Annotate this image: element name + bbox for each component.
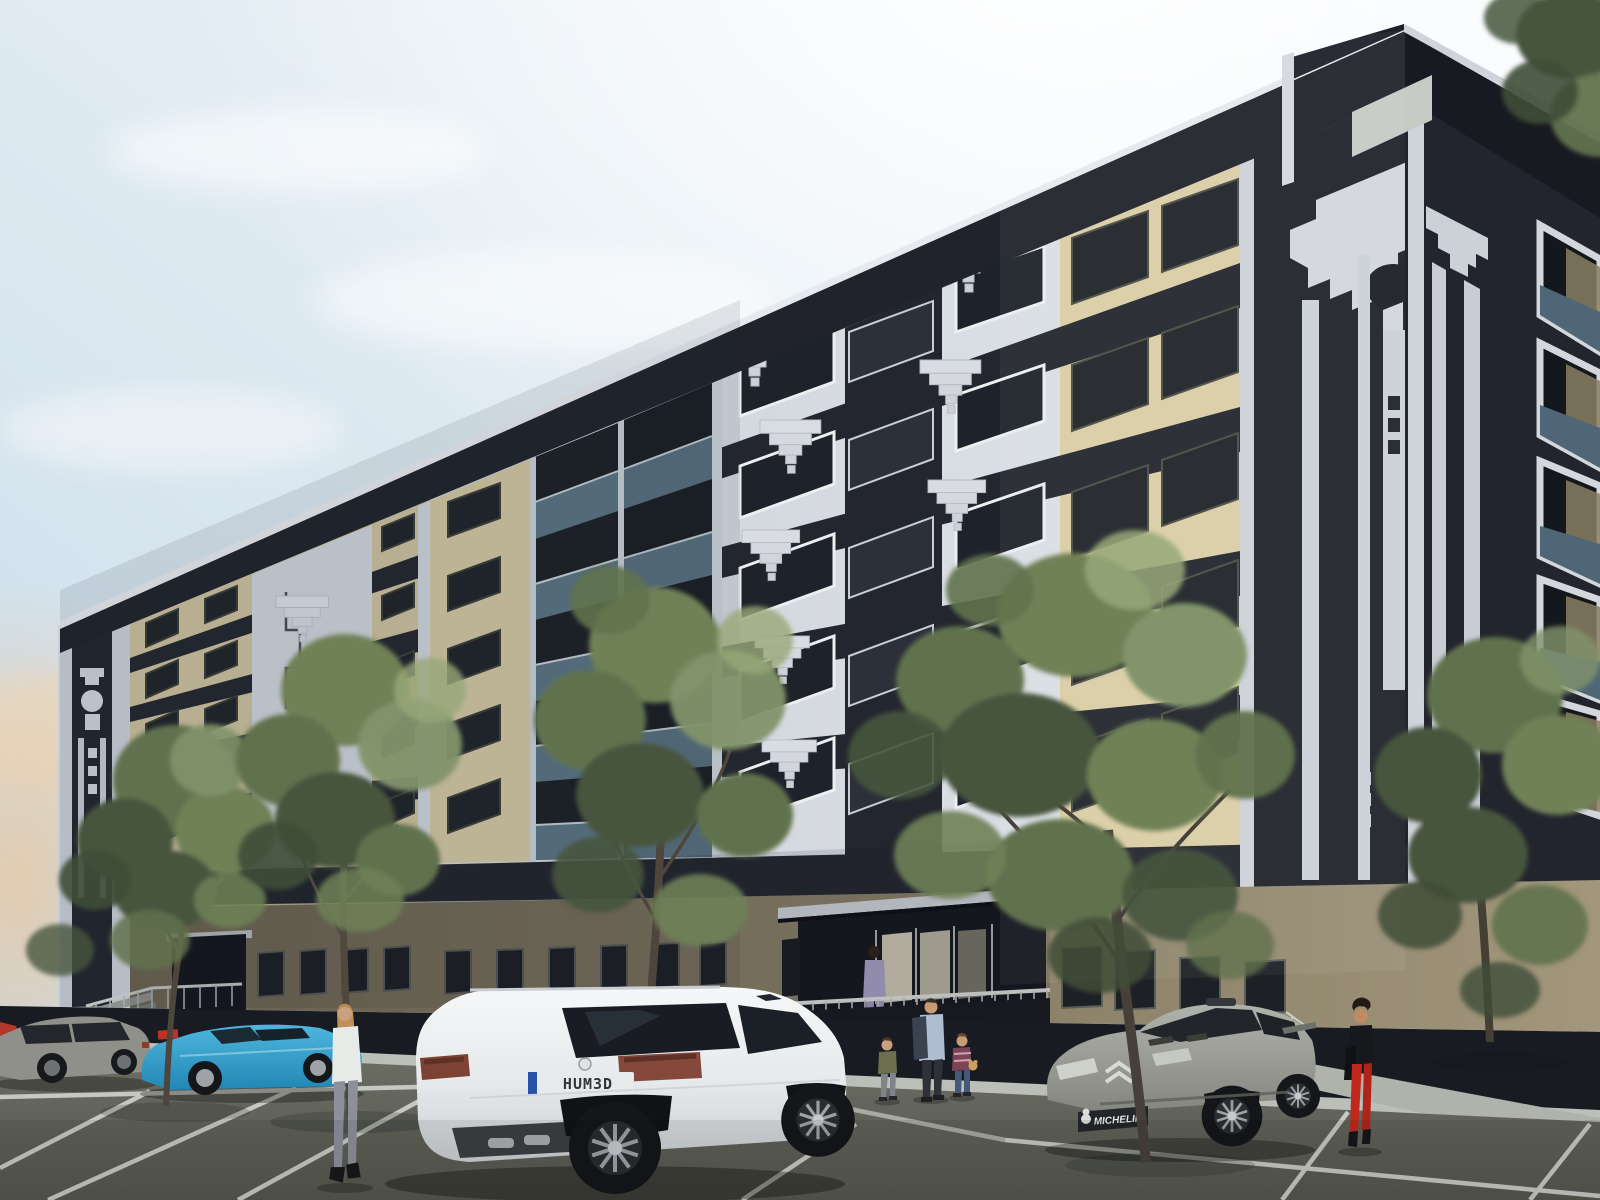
architectural-render: HUM3D MICHELIN	[0, 0, 1600, 1200]
scene-root: HUM3D MICHELIN	[0, 0, 1600, 1200]
vignette	[0, 1120, 1600, 1200]
dark-window-column	[845, 287, 942, 894]
suv-roundel	[579, 1058, 591, 1070]
grey-sedan	[0, 1017, 157, 1093]
license-plate-text: HUM3D	[563, 1075, 613, 1093]
blue-roadster	[140, 1025, 364, 1103]
